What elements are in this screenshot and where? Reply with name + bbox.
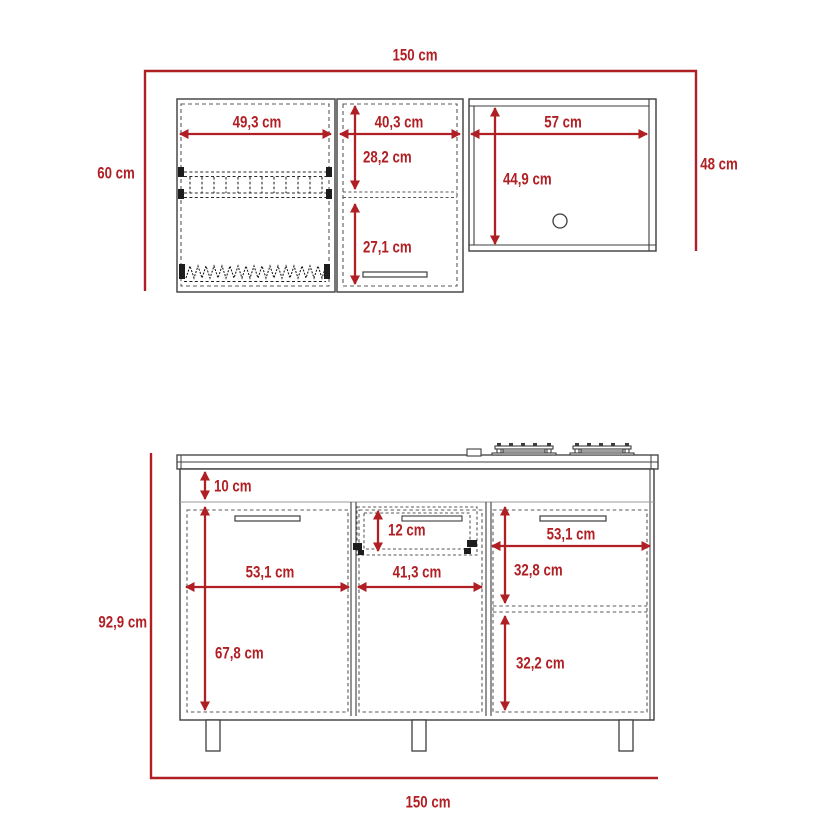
leg-middle — [412, 720, 426, 751]
cabinet-legs — [206, 720, 633, 751]
door-handle — [363, 272, 427, 277]
dim-lower-total-width: 150 cm — [406, 794, 451, 811]
dim-lower-right-upper-height: 32,8 cm — [514, 562, 563, 579]
dim-cab-middle-width: 40,3 cm — [375, 114, 424, 131]
diagram-canvas: 150 cm 60 cm 48 cm 49,3 cm 40,3 cm 28,2 … — [0, 0, 840, 840]
dim-lower-middle-door-width: 41,3 cm — [393, 564, 442, 581]
cooktop-knob — [467, 449, 481, 456]
leg-left — [206, 720, 220, 751]
right-door-handle — [540, 516, 606, 521]
dim-lower-apron-height: 10 cm — [214, 478, 252, 495]
dim-upper-right-height: 48 cm — [700, 156, 738, 173]
burner-left — [492, 443, 556, 455]
left-door-handle — [235, 516, 300, 521]
dim-upper-total-width: 150 cm — [393, 47, 438, 64]
countertop — [177, 455, 658, 469]
burner-right — [570, 443, 634, 455]
dim-upper-left-height: 60 cm — [97, 165, 135, 182]
dim-cab-right-width: 57 cm — [544, 114, 582, 131]
dim-lower-total-height: 92,9 cm — [98, 614, 147, 631]
dim-cab-left-width: 49,3 cm — [233, 114, 282, 131]
dim-cab-right-interior-height: 44,9 cm — [503, 171, 552, 188]
leg-right — [619, 720, 633, 751]
dim-cab-middle-lower-height: 27,1 cm — [363, 239, 412, 256]
dim-cab-middle-upper-height: 28,2 cm — [363, 149, 412, 166]
dim-lower-left-door-height: 67,8 cm — [215, 645, 264, 662]
dim-lower-right-lower-height: 32,2 cm — [516, 655, 565, 672]
dim-lower-drawer-height: 12 cm — [388, 522, 426, 539]
dim-lower-left-door-width: 53,1 cm — [246, 564, 295, 581]
cooktop — [467, 443, 634, 456]
dim-lower-right-door-width: 53,1 cm — [547, 526, 596, 543]
